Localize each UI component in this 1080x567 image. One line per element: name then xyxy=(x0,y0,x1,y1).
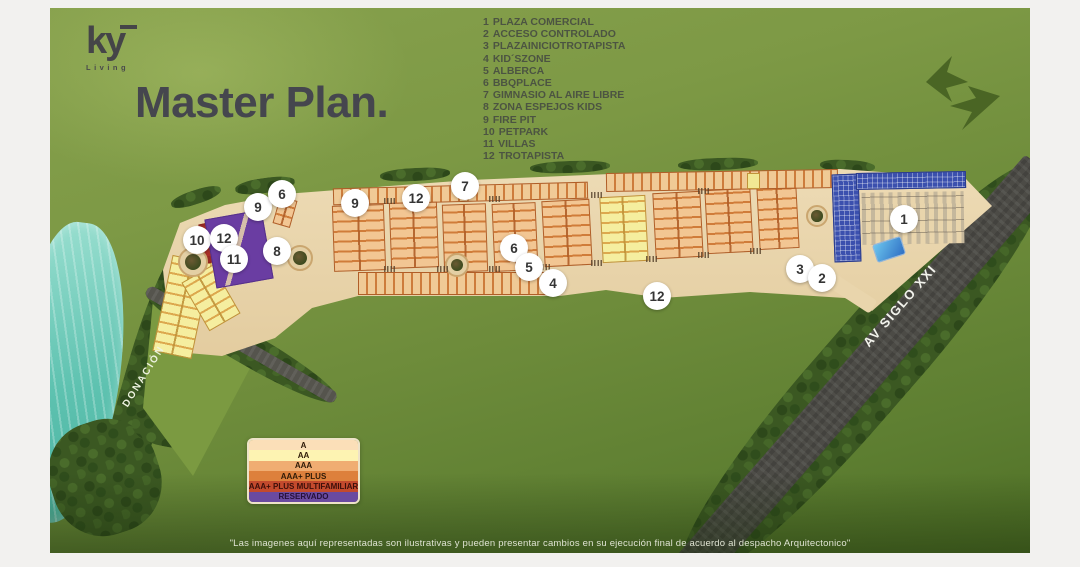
lot-category-label: A xyxy=(301,441,307,450)
amenity-label: ALBERCA xyxy=(493,65,544,77)
lot-category-label: AAA+ PLUS MULTIFAMILIAR xyxy=(249,482,358,491)
map-marker-1: 1 xyxy=(890,205,918,233)
amenity-number: 4 xyxy=(483,53,489,65)
lot-category-row: AAA xyxy=(249,461,358,471)
amenity-number: 12 xyxy=(483,150,495,162)
amenity-item-8: 8ZONA ESPEJOS KIDS xyxy=(483,101,625,113)
amenity-label: KID´SZONE xyxy=(493,53,551,65)
marker-number: 7 xyxy=(461,179,469,194)
lot-category-label: AA xyxy=(298,451,310,460)
amenity-item-12: 12TROTAPISTA xyxy=(483,150,625,162)
page-title: Master Plan. xyxy=(135,78,388,128)
brand-logo: ky Living xyxy=(86,22,129,72)
amenity-label: BBQPLACE xyxy=(493,77,552,89)
amenity-number: 8 xyxy=(483,101,489,113)
map-marker-4: 4 xyxy=(539,269,567,297)
amenity-item-5: 5ALBERCA xyxy=(483,65,625,77)
amenity-number: 1 xyxy=(483,16,489,28)
amenity-label: TROTAPISTA xyxy=(499,150,565,162)
lot-category-row: AAA+ PLUS MULTIFAMILIAR xyxy=(249,481,358,491)
marker-number: 2 xyxy=(818,271,826,286)
marker-number: 6 xyxy=(278,187,286,202)
marker-number: 12 xyxy=(216,231,231,246)
lot-category-row: RESERVADO xyxy=(249,492,358,502)
map-marker-12: 12 xyxy=(643,282,671,310)
map-marker-11: 11 xyxy=(220,245,248,273)
lot-category-row: AAA+ PLUS xyxy=(249,471,358,481)
amenity-item-2: 2ACCESO CONTROLADO xyxy=(483,28,625,40)
site-plan-scene: AV SIGLO XXI DONACIÓN xyxy=(50,8,1030,553)
amenity-number: 7 xyxy=(483,89,489,101)
amenity-item-1: 1PLAZA COMERCIAL xyxy=(483,16,625,28)
brand-logo-bar xyxy=(120,25,137,29)
amenity-number: 9 xyxy=(483,114,489,126)
marker-number: 3 xyxy=(796,262,804,277)
lot-category-row: A xyxy=(249,440,358,450)
map-marker-10: 10 xyxy=(183,226,211,254)
amenities-legend: 1PLAZA COMERCIAL2ACCESO CONTROLADO3PLAZA… xyxy=(483,16,625,162)
amenity-label: PLAZA COMERCIAL xyxy=(493,16,594,28)
amenity-item-9: 9FIRE PIT xyxy=(483,114,625,126)
lot-category-legend: AAAAAAAAA+ PLUSAAA+ PLUS MULTIFAMILIARRE… xyxy=(247,438,360,504)
map-marker-5: 5 xyxy=(515,253,543,281)
marker-number: 12 xyxy=(408,191,423,206)
amenity-number: 2 xyxy=(483,28,489,40)
amenity-number: 11 xyxy=(483,138,494,150)
marker-number: 9 xyxy=(254,200,262,215)
marker-number: 12 xyxy=(649,289,664,304)
map-marker-9: 9 xyxy=(341,189,369,217)
map-marker-2: 2 xyxy=(808,264,836,292)
map-marker-8: 8 xyxy=(263,237,291,265)
lot-category-label: AAA xyxy=(295,461,312,470)
brand-logo-tagline: Living xyxy=(86,63,129,72)
marker-number: 9 xyxy=(351,196,359,211)
master-plan-image: AV SIGLO XXI DONACIÓN xyxy=(0,0,1080,567)
map-marker-6: 6 xyxy=(268,180,296,208)
amenity-label: ACCESO CONTROLADO xyxy=(493,28,616,40)
disclaimer-text: "Las imagenes aquí representadas son ilu… xyxy=(50,538,1030,549)
marker-number: 10 xyxy=(189,233,204,248)
map-marker-7: 7 xyxy=(451,172,479,200)
amenity-label: FIRE PIT xyxy=(493,114,536,126)
lot-category-label: RESERVADO xyxy=(279,492,329,501)
marker-number: 5 xyxy=(525,260,533,275)
marker-number: 6 xyxy=(510,241,518,256)
north-arrows-icon xyxy=(912,48,1012,143)
lot-category-label: AAA+ PLUS xyxy=(281,472,327,481)
amenity-item-10: 10PETPARK xyxy=(483,126,625,138)
amenity-item-6: 6BBQPLACE xyxy=(483,77,625,89)
amenity-label: PETPARK xyxy=(499,126,548,138)
amenity-label: VILLAS xyxy=(498,138,535,150)
amenity-item-7: 7GIMNASIO AL AIRE LIBRE xyxy=(483,89,625,101)
amenity-item-4: 4KID´SZONE xyxy=(483,53,625,65)
marker-number: 8 xyxy=(273,244,281,259)
amenity-label: GIMNASIO AL AIRE LIBRE xyxy=(493,89,624,101)
marker-number: 4 xyxy=(549,276,557,291)
amenity-label: PLAZAINICIOTROTAPISTA xyxy=(493,40,626,52)
amenity-label: ZONA ESPEJOS KIDS xyxy=(493,101,602,113)
amenity-number: 10 xyxy=(483,126,495,138)
lot-category-row: AA xyxy=(249,450,358,460)
marker-number: 1 xyxy=(900,212,908,227)
amenity-number: 5 xyxy=(483,65,489,77)
amenity-item-11: 11VILLAS xyxy=(483,138,625,150)
amenity-number: 6 xyxy=(483,77,489,89)
map-marker-12: 12 xyxy=(402,184,430,212)
amenity-number: 3 xyxy=(483,40,489,52)
marker-number: 11 xyxy=(227,252,241,267)
amenity-item-3: 3PLAZAINICIOTROTAPISTA xyxy=(483,40,625,52)
